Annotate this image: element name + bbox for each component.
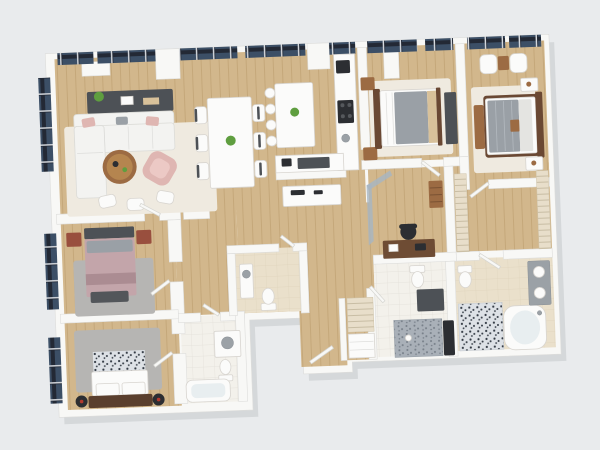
appliance-top xyxy=(297,157,329,169)
drawer-unit xyxy=(348,333,375,358)
nightstand xyxy=(136,230,152,245)
window xyxy=(367,39,417,53)
throw-pillow xyxy=(145,116,159,126)
entry-closet xyxy=(347,297,375,358)
wall-shelf xyxy=(428,181,443,209)
guest-bedroom xyxy=(360,74,458,161)
window xyxy=(179,46,237,60)
dining-area xyxy=(194,96,267,189)
window xyxy=(97,49,155,63)
double-bed xyxy=(87,350,153,408)
sink xyxy=(242,270,250,278)
bed-tray xyxy=(510,120,519,132)
nightstand xyxy=(363,147,377,161)
nightstand xyxy=(521,78,538,92)
floor-plan-canvas xyxy=(0,0,600,450)
counter-appliance xyxy=(281,158,291,166)
window xyxy=(48,337,63,403)
floor-plan-render xyxy=(0,0,600,450)
double-bed xyxy=(483,92,544,160)
bench xyxy=(90,291,128,303)
sink xyxy=(534,287,545,298)
mosaic-shower xyxy=(458,302,504,351)
mosaic-shower-floor xyxy=(394,319,443,358)
window xyxy=(425,38,453,51)
hall-console xyxy=(283,184,342,206)
bedroom-three xyxy=(66,226,155,317)
headboard xyxy=(84,226,134,239)
corner-bathtub xyxy=(503,305,547,351)
side-table xyxy=(498,56,510,70)
throw-pillow xyxy=(116,117,128,125)
sink xyxy=(221,337,233,349)
pillows xyxy=(86,239,132,253)
nightstand xyxy=(526,157,543,171)
nightstand xyxy=(66,232,82,247)
shower-drain xyxy=(405,335,411,341)
window xyxy=(329,42,355,55)
vanity xyxy=(239,264,253,298)
armchair xyxy=(510,53,528,73)
bench xyxy=(474,105,486,149)
pillow xyxy=(96,383,119,396)
bed-frame xyxy=(88,394,152,408)
window xyxy=(57,52,93,65)
sink xyxy=(533,266,544,277)
desk-papers xyxy=(389,244,398,251)
dark-vanity xyxy=(417,289,445,312)
bench xyxy=(443,320,455,355)
desk-monitor xyxy=(415,243,426,250)
sink xyxy=(342,134,350,142)
window xyxy=(245,44,305,58)
floor-cushion xyxy=(156,190,175,205)
cooktop xyxy=(337,100,354,124)
armchair xyxy=(480,54,498,74)
window xyxy=(467,36,505,49)
double-bed xyxy=(373,87,443,150)
window xyxy=(509,35,541,48)
nightstand xyxy=(360,77,374,91)
double-vanity xyxy=(528,260,552,305)
pillow xyxy=(122,382,145,395)
coffee-machine xyxy=(336,60,350,74)
sideboard-decor xyxy=(121,96,133,104)
vanity xyxy=(214,330,241,357)
double-bed xyxy=(84,237,136,297)
wardrobe xyxy=(444,92,458,144)
bathtub xyxy=(186,379,231,403)
closet-shelves xyxy=(347,297,374,332)
sideboard-books xyxy=(143,97,159,105)
